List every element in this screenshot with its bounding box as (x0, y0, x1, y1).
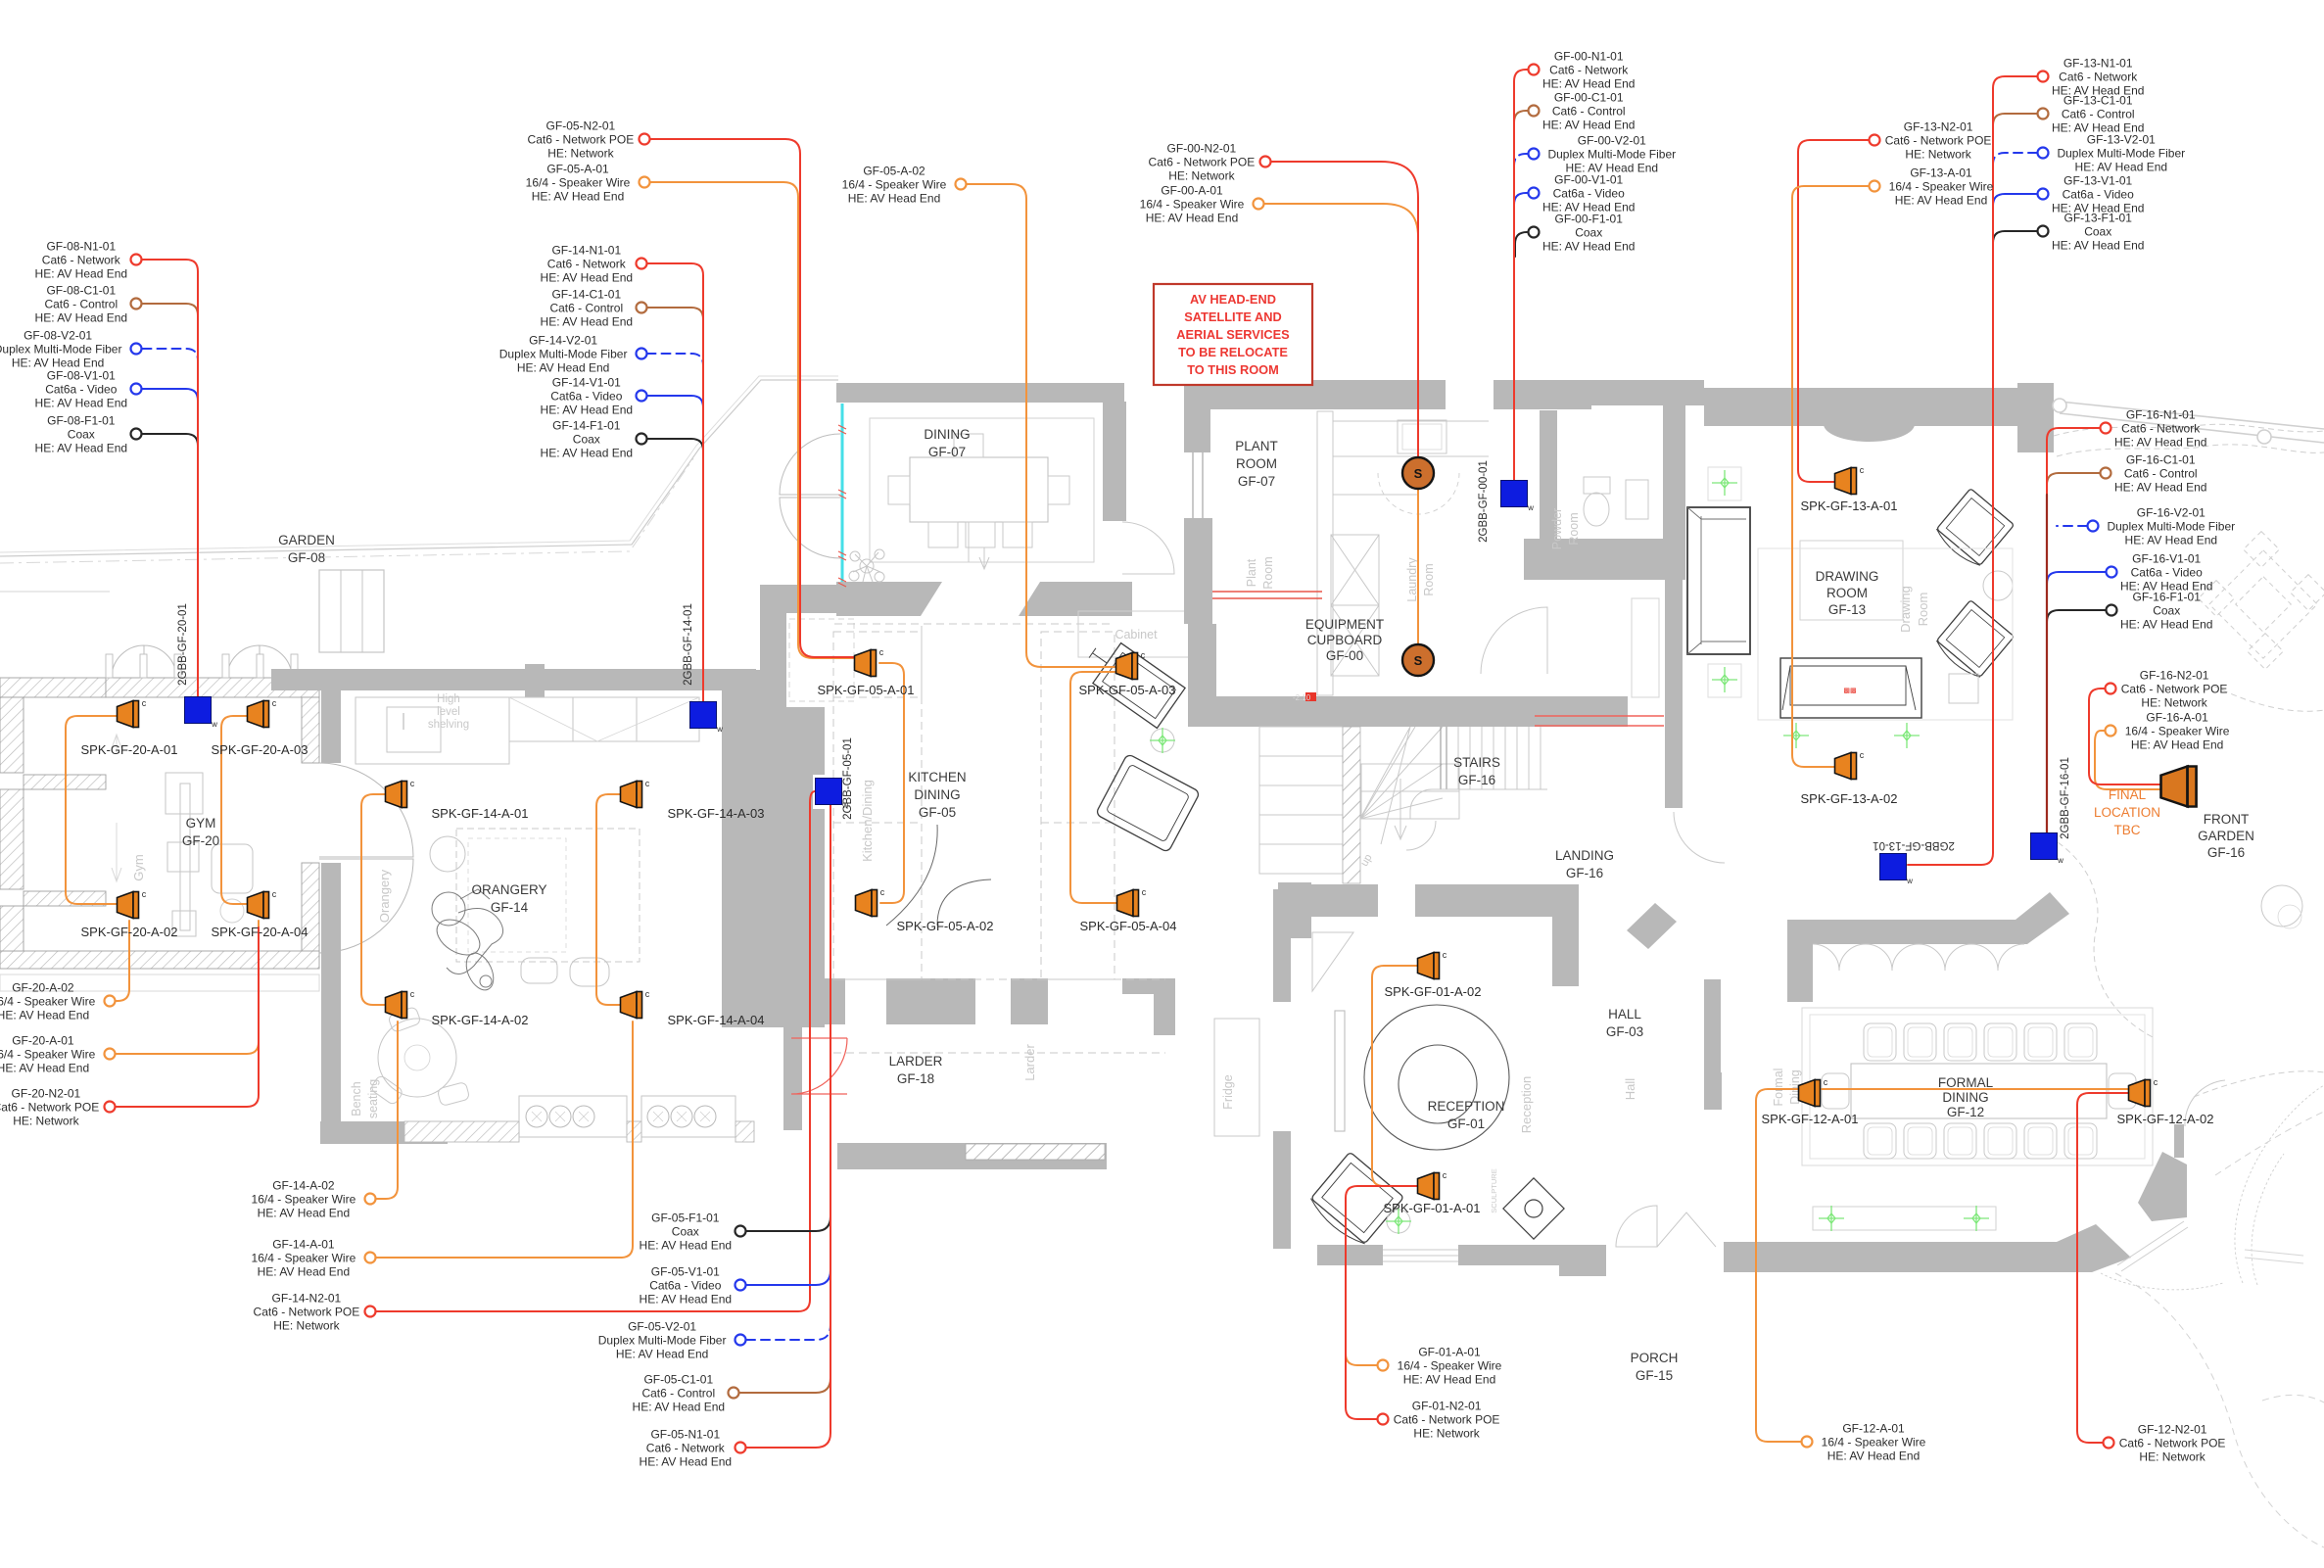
svg-text:Plant: Plant (1245, 558, 1258, 587)
svg-text:DINING: DINING (924, 427, 970, 442)
svg-text:SPK-GF-13-A-02: SPK-GF-13-A-02 (1801, 791, 1898, 806)
svg-text:GF-05-V2-01: GF-05-V2-01 (628, 1320, 696, 1334)
svg-text:GF-14-A-01: GF-14-A-01 (272, 1238, 335, 1252)
svg-text:LARDER: LARDER (889, 1054, 943, 1069)
svg-text:GF-00-N2-01: GF-00-N2-01 (1167, 142, 1237, 156)
svg-text:SPK-GF-13-A-01: SPK-GF-13-A-01 (1801, 499, 1898, 513)
svg-text:GF-00: GF-00 (1326, 648, 1363, 663)
svg-text:2GBB-GF-05-01: 2GBB-GF-05-01 (842, 737, 854, 820)
svg-text:TO BE RELOCATE: TO BE RELOCATE (1178, 345, 1288, 359)
svg-text:GF-16-N1-01: GF-16-N1-01 (2126, 408, 2196, 422)
svg-text:16/4 - Speaker Wire: 16/4 - Speaker Wire (252, 1193, 356, 1207)
svg-text:SPK-GF-14-A-03: SPK-GF-14-A-03 (668, 806, 765, 821)
svg-text:HE: AV Head End: HE: AV Head End (1403, 1373, 1496, 1387)
svg-text:HE: AV Head End: HE: AV Head End (2114, 481, 2207, 495)
svg-text:GF-14: GF-14 (491, 900, 529, 915)
svg-text:c: c (272, 889, 277, 899)
svg-text:GF-05-N1-01: GF-05-N1-01 (650, 1428, 720, 1442)
svg-text:GYM: GYM (186, 816, 216, 831)
svg-text:SPK-GF-01-A-02: SPK-GF-01-A-02 (1385, 984, 1482, 999)
svg-text:GF-05-A-01: GF-05-A-01 (546, 163, 609, 176)
svg-text:DRAWING: DRAWING (1816, 569, 1879, 584)
svg-text:HE: AV Head End: HE: AV Head End (541, 271, 634, 285)
svg-text:w: w (211, 720, 217, 729)
svg-text:Coax: Coax (68, 428, 95, 442)
svg-text:w: w (2057, 856, 2063, 865)
svg-text:HE: AV Head End: HE: AV Head End (1542, 77, 1636, 91)
svg-text:HE: AV Head End: HE: AV Head End (0, 1062, 89, 1075)
svg-text:Cat6 - Network: Cat6 - Network (42, 254, 121, 267)
svg-text:GF-20-N2-01: GF-20-N2-01 (12, 1087, 81, 1101)
svg-text:2GBB-GF-14-01: 2GBB-GF-14-01 (683, 603, 694, 686)
svg-text:c: c (142, 889, 147, 899)
svg-text:PORCH: PORCH (1631, 1351, 1679, 1365)
svg-text:w: w (1906, 877, 1913, 885)
svg-text:16/4 - Speaker Wire: 16/4 - Speaker Wire (842, 178, 947, 192)
svg-text:Cat6 - Network POE: Cat6 - Network POE (2121, 683, 2228, 696)
svg-text:HE: AV Head End: HE: AV Head End (258, 1265, 351, 1279)
svg-text:SCULPTURE: SCULPTURE (1490, 1168, 1498, 1212)
svg-text:GF-13-N2-01: GF-13-N2-01 (1904, 120, 1973, 134)
svg-text:c: c (880, 887, 885, 897)
svg-text:SPK-GF-12-A-01: SPK-GF-12-A-01 (1762, 1112, 1859, 1126)
svg-text:GF-13-V2-01: GF-13-V2-01 (2087, 133, 2156, 147)
svg-text:HE: AV Head End: HE: AV Head End (1542, 119, 1636, 132)
svg-text:Coax: Coax (672, 1225, 699, 1239)
svg-text:Orangery: Orangery (377, 869, 392, 923)
svg-text:GF-16-C1-01: GF-16-C1-01 (2126, 453, 2196, 467)
svg-text:GF-00-C1-01: GF-00-C1-01 (1554, 91, 1624, 105)
svg-text:GF-00-A-01: GF-00-A-01 (1161, 184, 1223, 198)
svg-text:Cat6 - Control: Cat6 - Control (641, 1387, 715, 1401)
svg-text:GF-07: GF-07 (1238, 474, 1275, 489)
svg-text:c: c (272, 698, 277, 708)
svg-text:Cat6 - Network POE: Cat6 - Network POE (528, 133, 635, 147)
svg-text:GF-13-N1-01: GF-13-N1-01 (2063, 57, 2133, 71)
svg-text:HE: AV Head End: HE: AV Head End (640, 1455, 733, 1469)
svg-text:HE: AV Head End: HE: AV Head End (541, 447, 634, 460)
svg-text:HE: AV Head End: HE: AV Head End (35, 311, 128, 325)
svg-text:Cat6 - Network POE: Cat6 - Network POE (1885, 134, 1992, 148)
svg-text:16/4 - Speaker Wire: 16/4 - Speaker Wire (526, 176, 631, 190)
svg-text:GF-14-F1-01: GF-14-F1-01 (552, 419, 621, 433)
svg-text:SPK-GF-20-A-02: SPK-GF-20-A-02 (81, 925, 178, 939)
svg-text:SPK-GF-20-A-04: SPK-GF-20-A-04 (212, 925, 308, 939)
svg-text:Cat6a - Video: Cat6a - Video (45, 383, 117, 397)
svg-text:High: High (437, 693, 460, 705)
svg-text:CUPBOARD: CUPBOARD (1307, 633, 1383, 647)
svg-text:Cat6a - Video: Cat6a - Video (1553, 187, 1625, 201)
svg-text:Cat6 - Control: Cat6 - Control (1552, 105, 1626, 119)
svg-text:SATELLITE AND: SATELLITE AND (1184, 309, 1282, 324)
svg-text:HE: AV Head End: HE: AV Head End (2125, 534, 2218, 547)
svg-text:HE: Network: HE: Network (2141, 696, 2207, 710)
svg-text:HALL: HALL (1608, 1007, 1641, 1022)
svg-text:-2.10: -2.10 (1293, 693, 1311, 702)
svg-text:ORANGERY: ORANGERY (471, 882, 546, 897)
svg-text:GF-13: GF-13 (1828, 602, 1866, 617)
svg-text:HE: AV Head End: HE: AV Head End (2131, 738, 2224, 752)
svg-text:GF-20: GF-20 (182, 833, 219, 848)
svg-text:16/4 - Speaker Wire: 16/4 - Speaker Wire (1889, 180, 1994, 194)
svg-text:Coax: Coax (1575, 226, 1602, 240)
svg-text:HE: AV Head End: HE: AV Head End (35, 397, 128, 410)
svg-text:GF-13-C1-01: GF-13-C1-01 (2063, 94, 2133, 108)
svg-text:c: c (1824, 1077, 1828, 1087)
svg-text:HE: Network: HE: Network (2139, 1450, 2205, 1464)
svg-text:c: c (1141, 650, 1146, 660)
svg-text:Cat6a - Video: Cat6a - Video (2063, 188, 2134, 202)
svg-text:GF-12-N2-01: GF-12-N2-01 (2138, 1423, 2207, 1437)
svg-text:16/4 - Speaker Wire: 16/4 - Speaker Wire (2125, 725, 2230, 738)
svg-text:SPK-GF-14-A-02: SPK-GF-14-A-02 (432, 1013, 529, 1027)
svg-text:Cat6a - Video: Cat6a - Video (550, 390, 622, 404)
svg-text:GF-16-A-01: GF-16-A-01 (2146, 711, 2208, 725)
svg-text:SPK-GF-01-A-01: SPK-GF-01-A-01 (1384, 1201, 1481, 1215)
svg-text:SPK-GF-05-A-03: SPK-GF-05-A-03 (1079, 683, 1176, 697)
svg-text:16/4 - Speaker Wire: 16/4 - Speaker Wire (0, 995, 96, 1009)
svg-text:2GBB-GF-00-01: 2GBB-GF-00-01 (1478, 460, 1490, 543)
svg-text:HE: AV Head End: HE: AV Head End (2052, 239, 2145, 253)
svg-text:GF-01: GF-01 (1447, 1117, 1485, 1131)
svg-text:STAIRS: STAIRS (1453, 755, 1500, 770)
svg-text:c: c (1142, 887, 1147, 897)
svg-text:GF-00-V2-01: GF-00-V2-01 (1578, 134, 1646, 148)
svg-text:Coax: Coax (2084, 225, 2111, 239)
svg-text:Duplex Multi-Mode Fiber: Duplex Multi-Mode Fiber (2107, 520, 2235, 534)
svg-text:c: c (645, 989, 650, 999)
svg-text:RECEPTION: RECEPTION (1428, 1099, 1505, 1114)
svg-text:GF-03: GF-03 (1606, 1024, 1643, 1039)
svg-text:2GBB-GF-20-01: 2GBB-GF-20-01 (177, 603, 189, 686)
svg-text:Laundry: Laundry (1405, 557, 1419, 602)
svg-text:AERIAL SERVICES: AERIAL SERVICES (1176, 327, 1290, 342)
svg-text:HE: Network: HE: Network (13, 1115, 79, 1128)
svg-text:Cat6 - Control: Cat6 - Control (2124, 467, 2198, 481)
svg-text:HE: AV Head End: HE: AV Head End (1827, 1449, 1921, 1463)
svg-text:ROOM: ROOM (1826, 586, 1868, 600)
svg-text:GARDEN: GARDEN (278, 533, 335, 547)
svg-text:SPK-GF-20-A-01: SPK-GF-20-A-01 (81, 742, 178, 757)
svg-text:DINING: DINING (914, 787, 960, 802)
svg-text:16/4 - Speaker Wire: 16/4 - Speaker Wire (1140, 198, 1245, 212)
svg-text:GF-16: GF-16 (1566, 866, 1603, 880)
svg-text:LANDING: LANDING (1555, 848, 1614, 863)
svg-text:Cat6 - Network: Cat6 - Network (547, 258, 627, 271)
svg-text:HE: Network: HE: Network (1413, 1427, 1480, 1441)
svg-text:Cat6 - Network: Cat6 - Network (1549, 64, 1629, 77)
svg-text:Cat6a - Video: Cat6a - Video (2131, 566, 2203, 580)
svg-text:Larder: Larder (1022, 1044, 1037, 1081)
svg-text:HE: AV Head End: HE: AV Head End (12, 356, 105, 370)
svg-text:HE: AV Head End: HE: AV Head End (616, 1348, 709, 1361)
svg-text:GF-14-C1-01: GF-14-C1-01 (551, 288, 621, 302)
svg-text:2GBB-GF-13-01: 2GBB-GF-13-01 (1873, 839, 1955, 851)
svg-text:2GBB-GF-16-01: 2GBB-GF-16-01 (2060, 757, 2071, 839)
svg-text:HE: AV Head End: HE: AV Head End (258, 1207, 351, 1220)
svg-text:Room: Room (1422, 563, 1436, 595)
svg-text:c: c (1443, 950, 1447, 960)
svg-text:▩▩: ▩▩ (1843, 688, 1856, 694)
svg-text:HE: AV Head End: HE: AV Head End (541, 315, 634, 329)
svg-text:GF-05: GF-05 (919, 805, 956, 820)
svg-text:GF-00-V1-01: GF-00-V1-01 (1554, 173, 1623, 187)
svg-text:SPK-GF-05-A-01: SPK-GF-05-A-01 (818, 683, 915, 697)
svg-text:GF-12-A-01: GF-12-A-01 (1842, 1422, 1905, 1436)
svg-text:AV HEAD-END: AV HEAD-END (1190, 292, 1276, 307)
svg-text:Room: Room (1261, 556, 1275, 589)
svg-text:SPK-GF-12-A-02: SPK-GF-12-A-02 (2117, 1112, 2214, 1126)
svg-text:HE: AV Head End: HE: AV Head End (0, 1009, 89, 1022)
svg-text:SPK-GF-14-A-01: SPK-GF-14-A-01 (432, 806, 529, 821)
svg-text:c: c (410, 989, 415, 999)
svg-text:Cat6 - Network: Cat6 - Network (646, 1442, 726, 1455)
svg-text:Duplex Multi-Mode Fiber: Duplex Multi-Mode Fiber (499, 348, 628, 361)
svg-text:HE: AV Head End: HE: AV Head End (640, 1239, 733, 1253)
svg-text:TBC: TBC (2114, 823, 2141, 837)
svg-text:HE: AV Head End: HE: AV Head End (2114, 436, 2207, 450)
svg-text:HE: AV Head End: HE: AV Head End (35, 442, 128, 455)
svg-text:SPK-GF-05-A-02: SPK-GF-05-A-02 (897, 919, 994, 933)
svg-text:16/4 - Speaker Wire: 16/4 - Speaker Wire (0, 1048, 96, 1062)
svg-text:GF-00-N1-01: GF-00-N1-01 (1554, 50, 1624, 64)
svg-text:GF-14-V1-01: GF-14-V1-01 (552, 376, 621, 390)
svg-text:Cat6 - Control: Cat6 - Control (549, 302, 623, 315)
svg-text:GF-12: GF-12 (1947, 1105, 1984, 1119)
svg-text:GF-05-C1-01: GF-05-C1-01 (643, 1373, 713, 1387)
svg-text:Bench: Bench (350, 1081, 363, 1116)
svg-text:LOCATION: LOCATION (2094, 805, 2160, 820)
svg-text:Fridge: Fridge (1221, 1074, 1235, 1109)
svg-text:GF-05-F1-01: GF-05-F1-01 (651, 1212, 720, 1225)
svg-text:FRONT: FRONT (2204, 812, 2250, 827)
svg-text:Cat6 - Network: Cat6 - Network (2121, 422, 2201, 436)
svg-text:GF-18: GF-18 (897, 1071, 934, 1086)
svg-text:Coax: Coax (2153, 604, 2180, 618)
svg-text:GF-08: GF-08 (288, 550, 325, 565)
svg-text:c: c (2154, 1077, 2158, 1087)
svg-text:GF-14-N1-01: GF-14-N1-01 (551, 244, 621, 258)
svg-text:GF-05-N2-01: GF-05-N2-01 (546, 119, 616, 133)
svg-text:HE: AV Head End: HE: AV Head End (1542, 240, 1636, 254)
svg-text:GF-16-N2-01: GF-16-N2-01 (2140, 669, 2209, 683)
svg-text:w: w (716, 725, 723, 734)
svg-text:SPK-GF-20-A-03: SPK-GF-20-A-03 (212, 742, 308, 757)
svg-text:HE: AV Head End: HE: AV Head End (848, 192, 941, 206)
svg-text:HE: AV Head End: HE: AV Head End (633, 1401, 726, 1414)
svg-text:GF-01-N2-01: GF-01-N2-01 (1412, 1400, 1482, 1413)
svg-text:HE: AV Head End: HE: AV Head End (532, 190, 625, 204)
svg-text:SPK-GF-14-A-04: SPK-GF-14-A-04 (668, 1013, 765, 1027)
svg-text:Duplex Multi-Mode Fiber: Duplex Multi-Mode Fiber (2057, 147, 2185, 161)
svg-text:HE: AV Head End: HE: AV Head End (1895, 194, 1988, 208)
svg-text:GARDEN: GARDEN (2198, 829, 2254, 843)
svg-text:GF-08-F1-01: GF-08-F1-01 (47, 414, 116, 428)
svg-text:Cabinet: Cabinet (1115, 628, 1158, 641)
svg-text:FORMAL: FORMAL (1938, 1075, 1994, 1090)
svg-text:GF-08-V2-01: GF-08-V2-01 (24, 329, 92, 343)
svg-text:Cat6 - Network POE: Cat6 - Network POE (0, 1101, 99, 1115)
svg-text:16/4 - Speaker Wire: 16/4 - Speaker Wire (1398, 1359, 1502, 1373)
svg-text:GF-16-V2-01: GF-16-V2-01 (2137, 506, 2205, 520)
svg-text:GF-05-A-02: GF-05-A-02 (863, 165, 925, 178)
svg-text:GF-16: GF-16 (1458, 773, 1495, 787)
svg-text:Powder: Powder (1550, 508, 1564, 549)
svg-text:HE: AV Head End: HE: AV Head End (541, 404, 634, 417)
svg-text:HE: AV Head End: HE: AV Head End (640, 1293, 733, 1307)
svg-text:GF-20-A-01: GF-20-A-01 (12, 1034, 74, 1048)
svg-text:Formal: Formal (1772, 1069, 1785, 1107)
svg-text:16/4 - Speaker Wire: 16/4 - Speaker Wire (252, 1252, 356, 1265)
svg-text:Cat6 - Control: Cat6 - Control (2062, 108, 2135, 121)
svg-text:16/4 - Speaker Wire: 16/4 - Speaker Wire (1822, 1436, 1926, 1449)
svg-text:GF-14-N2-01: GF-14-N2-01 (272, 1292, 342, 1306)
svg-text:S: S (1414, 653, 1423, 668)
svg-text:Hall: Hall (1623, 1078, 1637, 1101)
svg-text:EQUIPMENT: EQUIPMENT (1305, 617, 1384, 632)
svg-text:c: c (410, 779, 415, 788)
svg-text:HE: Network: HE: Network (273, 1319, 340, 1333)
svg-text:Kitchen/Dining: Kitchen/Dining (860, 780, 875, 862)
svg-text:GF-13-V1-01: GF-13-V1-01 (2063, 174, 2132, 188)
svg-text:Drawing: Drawing (1898, 586, 1913, 633)
svg-text:c: c (142, 698, 147, 708)
svg-text:GF-01-A-01: GF-01-A-01 (1418, 1346, 1481, 1359)
svg-text:GF-13-F1-01: GF-13-F1-01 (2064, 212, 2133, 225)
svg-text:GF-08-V1-01: GF-08-V1-01 (47, 369, 116, 383)
svg-text:Cat6 - Network: Cat6 - Network (2059, 71, 2138, 84)
svg-text:GF-05-V1-01: GF-05-V1-01 (651, 1265, 720, 1279)
svg-text:seating: seating (366, 1079, 380, 1118)
svg-text:ROOM: ROOM (1236, 456, 1277, 471)
svg-text:GF-16: GF-16 (2207, 845, 2245, 860)
svg-text:HE: AV Head End: HE: AV Head End (2120, 618, 2213, 632)
svg-text:HE: Network: HE: Network (1168, 169, 1235, 183)
svg-text:GF-14-A-02: GF-14-A-02 (272, 1179, 335, 1193)
svg-text:KITCHEN: KITCHEN (908, 770, 966, 784)
svg-text:GF-20-A-02: GF-20-A-02 (12, 981, 74, 995)
svg-text:GF-00-F1-01: GF-00-F1-01 (1555, 213, 1624, 226)
svg-text:Duplex Multi-Mode Fiber: Duplex Multi-Mode Fiber (598, 1334, 727, 1348)
svg-text:c: c (879, 647, 884, 657)
svg-text:Cat6 - Network POE: Cat6 - Network POE (254, 1306, 360, 1319)
svg-text:c: c (1443, 1170, 1447, 1180)
svg-text:c: c (1860, 750, 1865, 760)
svg-text:GF-08-C1-01: GF-08-C1-01 (46, 284, 116, 298)
svg-text:GF-08-N1-01: GF-08-N1-01 (46, 240, 116, 254)
svg-text:HE: AV Head End: HE: AV Head End (517, 361, 610, 375)
svg-text:Cat6 - Network POE: Cat6 - Network POE (2119, 1437, 2226, 1450)
svg-text:shelving: shelving (428, 719, 469, 731)
svg-text:w: w (1527, 503, 1534, 512)
svg-text:FINAL: FINAL (2109, 787, 2147, 802)
svg-text:Room: Room (1916, 593, 1930, 627)
svg-text:Gym: Gym (131, 854, 146, 880)
svg-text:HE: AV Head End: HE: AV Head End (2075, 161, 2168, 174)
svg-text:HE: Network: HE: Network (547, 147, 614, 161)
svg-text:GF-13-A-01: GF-13-A-01 (1910, 166, 1972, 180)
svg-text:Room: Room (1567, 512, 1581, 545)
svg-text:SPK-GF-05-A-04: SPK-GF-05-A-04 (1080, 919, 1177, 933)
svg-text:HE: AV Head End: HE: AV Head End (1146, 212, 1239, 225)
svg-text:Cat6 - Network POE: Cat6 - Network POE (1394, 1413, 1500, 1427)
svg-text:Duplex Multi-Mode Fiber: Duplex Multi-Mode Fiber (1547, 148, 1676, 162)
svg-text:GF-15: GF-15 (1636, 1368, 1673, 1383)
svg-text:Cat6 - Network POE: Cat6 - Network POE (1149, 156, 1256, 169)
svg-text:DINING: DINING (1942, 1090, 1988, 1105)
svg-text:PLANT: PLANT (1235, 439, 1278, 453)
svg-text:c: c (645, 779, 650, 788)
svg-text:Reception: Reception (1519, 1076, 1534, 1134)
svg-text:GF-16-V1-01: GF-16-V1-01 (2132, 552, 2201, 566)
svg-text:Duplex Multi-Mode Fiber: Duplex Multi-Mode Fiber (0, 343, 121, 356)
svg-text:Coax: Coax (573, 433, 600, 447)
svg-text:GF-07: GF-07 (928, 445, 966, 459)
svg-text:TO THIS ROOM: TO THIS ROOM (1187, 362, 1279, 377)
svg-text:HE: Network: HE: Network (1905, 148, 1971, 162)
svg-text:Cat6a - Video: Cat6a - Video (649, 1279, 721, 1293)
svg-text:HE: AV Head End: HE: AV Head End (35, 267, 128, 281)
svg-text:Cat6 - Control: Cat6 - Control (44, 298, 118, 311)
svg-text:c: c (1860, 465, 1865, 475)
svg-text:GF-14-V2-01: GF-14-V2-01 (529, 334, 597, 348)
svg-text:S: S (1414, 466, 1423, 481)
svg-text:GF-16-F1-01: GF-16-F1-01 (2133, 591, 2202, 604)
